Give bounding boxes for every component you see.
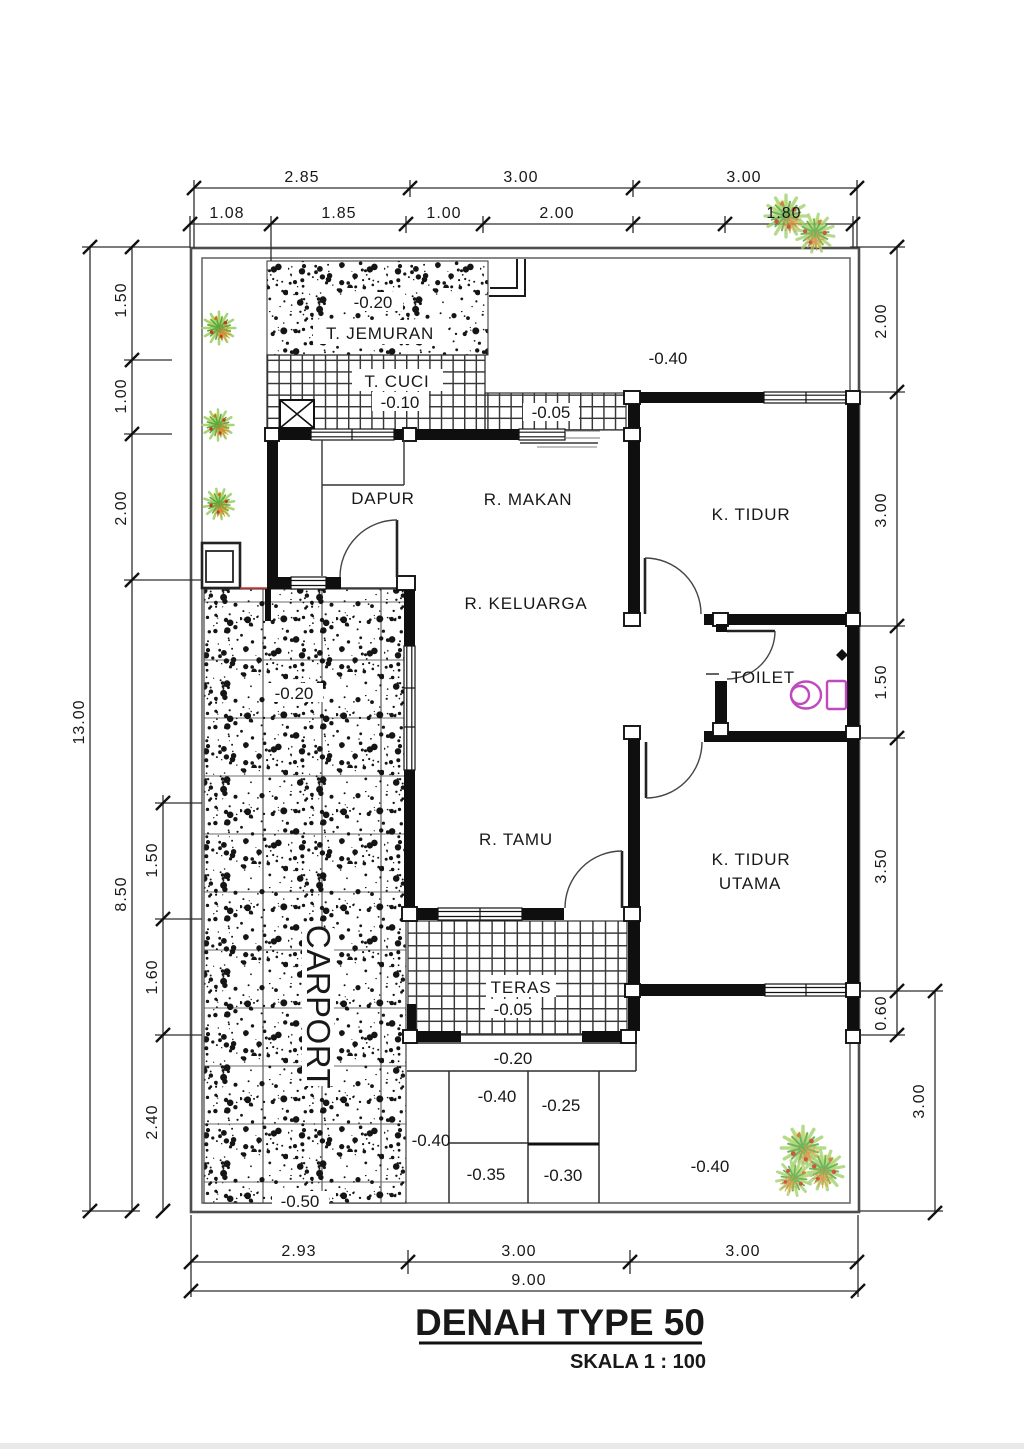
svg-text:3.00: 3.00: [726, 169, 761, 186]
svg-text:1.85: 1.85: [321, 205, 356, 222]
svg-text:R. TAMU: R. TAMU: [479, 830, 553, 849]
svg-text:3.00: 3.00: [725, 1243, 760, 1260]
svg-text:2.93: 2.93: [281, 1243, 316, 1260]
svg-text:-0.40: -0.40: [412, 1131, 451, 1150]
svg-text:-0.20: -0.20: [354, 293, 393, 312]
svg-text:R. KELUARGA: R. KELUARGA: [464, 594, 587, 613]
svg-text:R. MAKAN: R. MAKAN: [484, 490, 573, 509]
svg-text:1.00: 1.00: [426, 205, 461, 222]
svg-text:1.60: 1.60: [144, 959, 161, 994]
svg-text:1.08: 1.08: [209, 205, 244, 222]
svg-text:-0.40: -0.40: [649, 349, 688, 368]
svg-text:3.00: 3.00: [503, 169, 538, 186]
svg-text:-0.10: -0.10: [381, 393, 420, 412]
svg-text:0.60: 0.60: [873, 995, 890, 1030]
svg-text:-0.30: -0.30: [544, 1166, 583, 1185]
svg-text:TOILET: TOILET: [731, 668, 795, 687]
svg-text:TERAS: TERAS: [491, 978, 552, 997]
svg-text:T. JEMURAN: T. JEMURAN: [326, 324, 434, 343]
svg-text:1.50: 1.50: [873, 664, 890, 699]
svg-text:T. CUCI: T. CUCI: [364, 372, 429, 391]
svg-text:-0.25: -0.25: [542, 1096, 581, 1115]
svg-text:UTAMA: UTAMA: [719, 874, 781, 893]
svg-text:1.80: 1.80: [766, 205, 801, 222]
svg-text:1.50: 1.50: [113, 282, 130, 317]
svg-text:13.00: 13.00: [71, 699, 88, 744]
svg-text:3.00: 3.00: [911, 1083, 928, 1118]
svg-text:-0.50: -0.50: [281, 1192, 320, 1211]
svg-text:1.00: 1.00: [113, 378, 130, 413]
svg-text:-0.20: -0.20: [275, 684, 314, 703]
svg-text:-0.20: -0.20: [494, 1049, 533, 1068]
svg-text:-0.40: -0.40: [691, 1157, 730, 1176]
svg-text:1.50: 1.50: [144, 842, 161, 877]
svg-text:8.50: 8.50: [113, 876, 130, 911]
svg-text:K. TIDUR: K. TIDUR: [712, 850, 791, 869]
svg-text:DAPUR: DAPUR: [351, 489, 415, 508]
svg-text:3.00: 3.00: [873, 492, 890, 527]
svg-text:-0.40: -0.40: [478, 1087, 517, 1106]
svg-text:K. TIDUR: K. TIDUR: [712, 505, 791, 524]
svg-text:-0.05: -0.05: [494, 1000, 533, 1019]
svg-text:3.00: 3.00: [501, 1243, 536, 1260]
svg-text:9.00: 9.00: [511, 1272, 546, 1289]
svg-text:2.00: 2.00: [873, 303, 890, 338]
svg-text:-0.05: -0.05: [532, 403, 571, 422]
svg-text:2.85: 2.85: [284, 169, 319, 186]
svg-text:2.40: 2.40: [144, 1104, 161, 1139]
svg-text:2.00: 2.00: [539, 205, 574, 222]
svg-text:CARPORT: CARPORT: [300, 925, 337, 1089]
svg-text:-0.35: -0.35: [467, 1165, 506, 1184]
svg-text:DENAH TYPE 50: DENAH TYPE 50: [415, 1302, 705, 1343]
svg-text:2.00: 2.00: [113, 490, 130, 525]
svg-text:3.50: 3.50: [873, 848, 890, 883]
svg-text:SKALA 1 : 100: SKALA 1 : 100: [570, 1351, 706, 1373]
